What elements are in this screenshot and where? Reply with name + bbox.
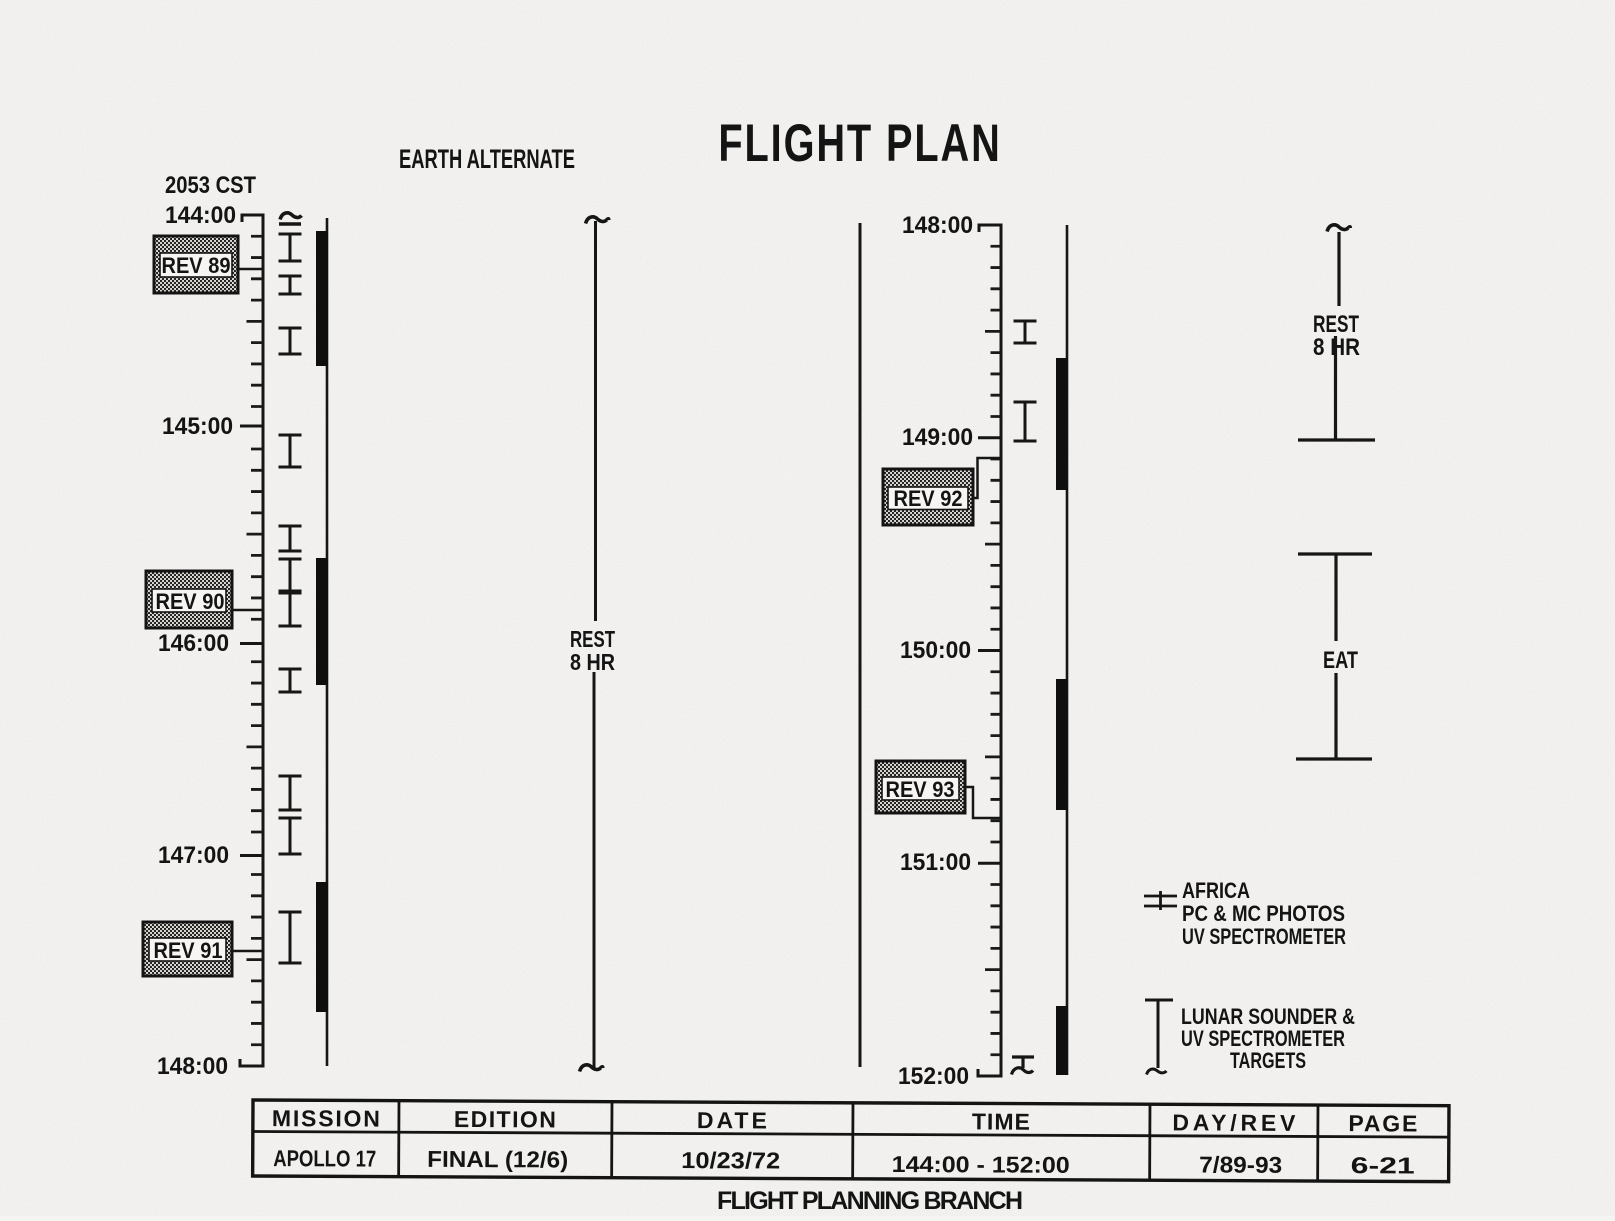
svg-text:EARTH ALTERNATE: EARTH ALTERNATE bbox=[399, 144, 575, 174]
svg-text:REV 91: REV 91 bbox=[154, 938, 223, 963]
svg-text:TIME: TIME bbox=[972, 1108, 1030, 1134]
svg-text:REV 92: REV 92 bbox=[894, 486, 963, 511]
svg-text:152:00: 152:00 bbox=[898, 1063, 969, 1090]
svg-text:148:00: 148:00 bbox=[157, 1053, 228, 1080]
svg-text:147:00: 147:00 bbox=[158, 842, 229, 869]
svg-text:148:00: 148:00 bbox=[902, 212, 973, 239]
svg-text:REV 93: REV 93 bbox=[886, 777, 955, 802]
svg-text:150:00: 150:00 bbox=[900, 637, 971, 664]
svg-text:144:00 - 152:00: 144:00 - 152:00 bbox=[892, 1151, 1070, 1178]
svg-text:EAT: EAT bbox=[1323, 647, 1358, 674]
svg-text:FLIGHT PLAN: FLIGHT PLAN bbox=[718, 113, 1001, 172]
svg-text:EDITION: EDITION bbox=[454, 1106, 556, 1132]
svg-text:REV 89: REV 89 bbox=[162, 253, 231, 278]
svg-text:8 HR: 8 HR bbox=[1313, 334, 1360, 361]
svg-text:REV 90: REV 90 bbox=[156, 589, 225, 614]
svg-text:TARGETS: TARGETS bbox=[1230, 1048, 1306, 1073]
svg-text:7/89-93: 7/89-93 bbox=[1199, 1151, 1282, 1177]
svg-text:6-21: 6-21 bbox=[1351, 1152, 1415, 1178]
svg-text:146:00: 146:00 bbox=[158, 630, 229, 657]
svg-text:PC & MC PHOTOS: PC & MC PHOTOS bbox=[1182, 901, 1345, 926]
svg-text:2053 CST: 2053 CST bbox=[165, 172, 256, 199]
svg-text:FINAL (12/6): FINAL (12/6) bbox=[427, 1146, 568, 1173]
svg-text:MISSION: MISSION bbox=[272, 1105, 380, 1132]
svg-text:AFRICA: AFRICA bbox=[1182, 878, 1250, 903]
svg-text:FLIGHT PLANNING BRANCH: FLIGHT PLANNING BRANCH bbox=[717, 1187, 1023, 1215]
svg-text:151:00: 151:00 bbox=[900, 849, 971, 876]
svg-text:PAGE: PAGE bbox=[1348, 1110, 1417, 1136]
svg-text:UV SPECTROMETER: UV SPECTROMETER bbox=[1182, 924, 1346, 949]
svg-text:144:00: 144:00 bbox=[165, 202, 236, 229]
svg-text:145:00: 145:00 bbox=[162, 413, 233, 440]
svg-text:8 HR: 8 HR bbox=[570, 649, 615, 675]
svg-text:10/23/72: 10/23/72 bbox=[681, 1147, 780, 1173]
svg-text:APOLLO 17: APOLLO 17 bbox=[273, 1145, 376, 1171]
svg-text:149:00: 149:00 bbox=[902, 424, 973, 451]
